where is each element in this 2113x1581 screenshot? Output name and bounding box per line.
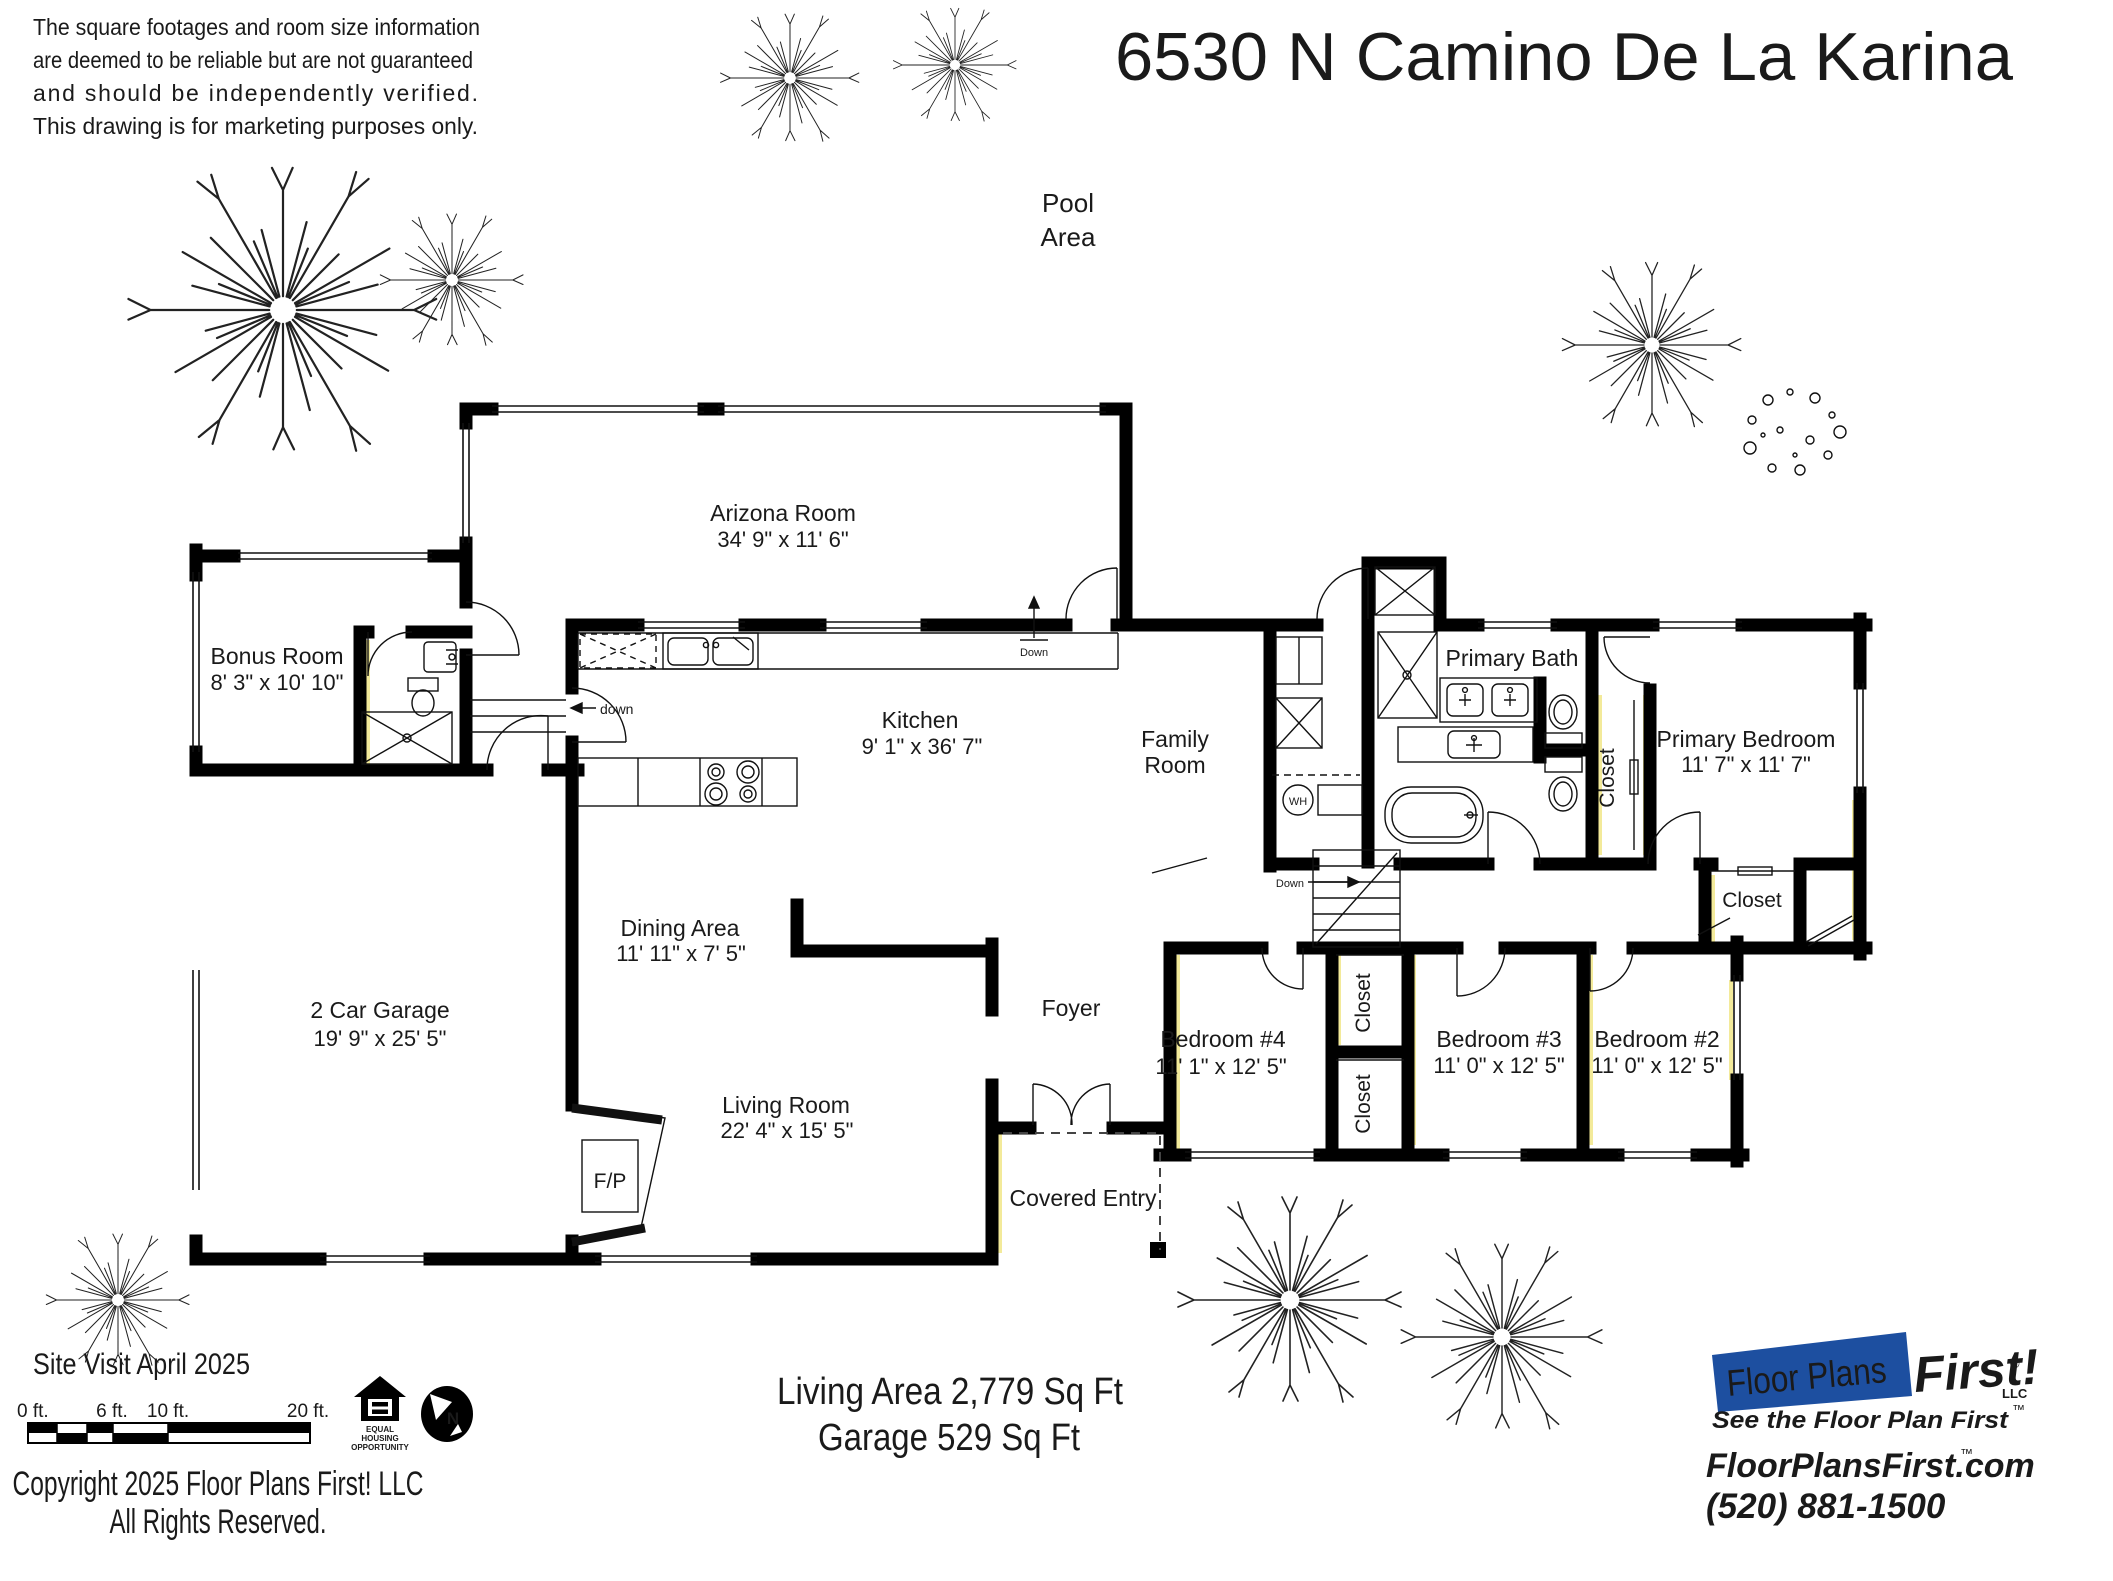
disclaimer-line-3: and should be independently verified. — [33, 80, 478, 106]
annotations: The square footages and room size inform… — [33, 14, 2013, 1211]
room-label-garage: 2 Car Garage — [310, 997, 449, 1023]
pool-area-label-1: Pool — [1042, 188, 1094, 218]
stairs — [470, 597, 1400, 947]
brand-logo: Floor Plans First! ® LLC See the Floor P… — [1706, 1332, 2040, 1526]
living-area-total: Living Area 2,779 Sq Ft — [777, 1371, 1123, 1413]
room-label-dining: Dining Area — [621, 915, 740, 941]
scale-tick-10: 10 ft. — [147, 1401, 189, 1422]
disclaimer-line-2: are deemed to be reliable but are not gu… — [33, 47, 473, 73]
room-label-bedroom2: Bedroom #2 — [1594, 1026, 1719, 1052]
equal-housing-icon: EQUAL HOUSING OPPORTUNITY — [351, 1376, 409, 1452]
room-label-primary-bedroom: Primary Bedroom — [1657, 726, 1836, 752]
room-dims-arizona: 34' 9" x 11' 6" — [717, 527, 848, 552]
pool-area-label-2: Area — [1041, 222, 1096, 252]
room-label-foyer: Foyer — [1042, 995, 1101, 1021]
bonus-bath-sink-icon — [424, 642, 456, 672]
disclaimer-line-4: This drawing is for marketing purposes o… — [33, 113, 478, 139]
garage-area-total: Garage 529 Sq Ft — [818, 1417, 1080, 1459]
logo-tagline: See the Floor Plan First — [1712, 1407, 2009, 1434]
bonus-bath-toilet-icon — [408, 678, 438, 691]
room-label-family-2: Room — [1144, 752, 1205, 778]
walls — [196, 409, 1866, 1259]
down-label-stairs: Down — [1276, 878, 1304, 890]
room-dims-bedroom2: 11' 0" x 12' 5" — [1591, 1053, 1722, 1078]
logo-tagline-tm: ™ — [2012, 1402, 2025, 1417]
floor-plan-svg: The square footages and room size inform… — [0, 0, 2113, 1581]
footer: Site Visit April 2025 0 ft. 6 ft. 10 ft.… — [13, 1348, 1124, 1541]
closet-label-primary-bedroom: Closet — [1722, 889, 1782, 912]
room-label-bedroom4: Bedroom #4 — [1160, 1026, 1286, 1052]
pebble-cluster-icon — [1744, 389, 1846, 475]
room-dims-kitchen: 9' 1" x 36' 7" — [862, 734, 983, 759]
room-dims-garage: 19' 9" x 25' 5" — [314, 1026, 447, 1051]
equal-housing-text-1: EQUAL — [366, 1425, 394, 1434]
logo-registered-icon: ® — [2010, 1356, 2020, 1371]
room-label-family-1: Family — [1141, 726, 1209, 752]
down-label-arizona: Down — [1020, 647, 1048, 659]
scale-tick-20: 20 ft. — [287, 1401, 329, 1422]
logo-website-tm: ™ — [1960, 1446, 1973, 1461]
disclaimer-line-1: The square footages and room size inform… — [33, 14, 480, 40]
scale-bar: 0 ft. 6 ft. 10 ft. 20 ft. — [17, 1401, 329, 1443]
floor-plan-page: The square footages and room size inform… — [0, 0, 2113, 1581]
copyright-line-1: Copyright 2025 Floor Plans First! LLC — [13, 1465, 424, 1503]
room-dims-living: 22' 4" x 15' 5" — [721, 1118, 854, 1143]
room-dims-bedroom3: 11' 0" x 12' 5" — [1433, 1053, 1564, 1078]
room-label-bonus: Bonus Room — [211, 643, 344, 669]
site-visit-label: Site Visit April 2025 — [33, 1348, 250, 1381]
logo-website[interactable]: FloorPlansFirst.com — [1706, 1447, 2035, 1485]
room-label-primary-bath: Primary Bath — [1446, 645, 1579, 671]
kitchen-sink-icon — [668, 638, 708, 665]
page-title: 6530 N Camino De La Karina — [1115, 19, 2013, 95]
logo-phone: (520) 881-1500 — [1706, 1487, 1946, 1526]
room-label-bedroom3: Bedroom #3 — [1436, 1026, 1561, 1052]
scale-tick-6: 6 ft. — [96, 1401, 128, 1422]
north-arrow-icon: N — [421, 1386, 473, 1442]
equal-housing-text-2: HOUSING — [361, 1434, 398, 1443]
equal-housing-text-3: OPPORTUNITY — [351, 1443, 409, 1452]
room-dims-dining: 11' 11" x 7' 5" — [616, 941, 746, 966]
closet-label-hall-upper: Closet — [1352, 973, 1375, 1033]
logo-llc: LLC — [2002, 1386, 2028, 1401]
down-label-kitchen: down — [600, 701, 633, 717]
room-dims-primary-bedroom: 11' 7" x 11' 7" — [1681, 752, 1811, 777]
room-dims-bonus: 8' 3" x 10' 10" — [211, 670, 344, 695]
scale-tick-0: 0 ft. — [17, 1401, 49, 1422]
closet-label-hall-lower: Closet — [1352, 1074, 1375, 1134]
copyright-line-2: All Rights Reserved. — [110, 1503, 327, 1541]
room-label-kitchen: Kitchen — [882, 707, 959, 733]
water-heater-label: WH — [1289, 796, 1307, 808]
covered-entry-post — [1150, 1242, 1166, 1258]
room-label-living: Living Room — [722, 1092, 850, 1118]
room-label-arizona: Arizona Room — [710, 500, 856, 526]
north-letter: N — [447, 1409, 459, 1428]
fireplace-label: F/P — [594, 1170, 627, 1193]
stove-burner-icon — [708, 764, 724, 780]
primary-vanity-single — [1398, 727, 1533, 762]
room-label-covered-entry: Covered Entry — [1009, 1185, 1157, 1211]
closet-label-primary-bath: Closet — [1596, 748, 1619, 808]
room-dims-bedroom4: 11' 1" x 12' 5" — [1155, 1054, 1286, 1079]
